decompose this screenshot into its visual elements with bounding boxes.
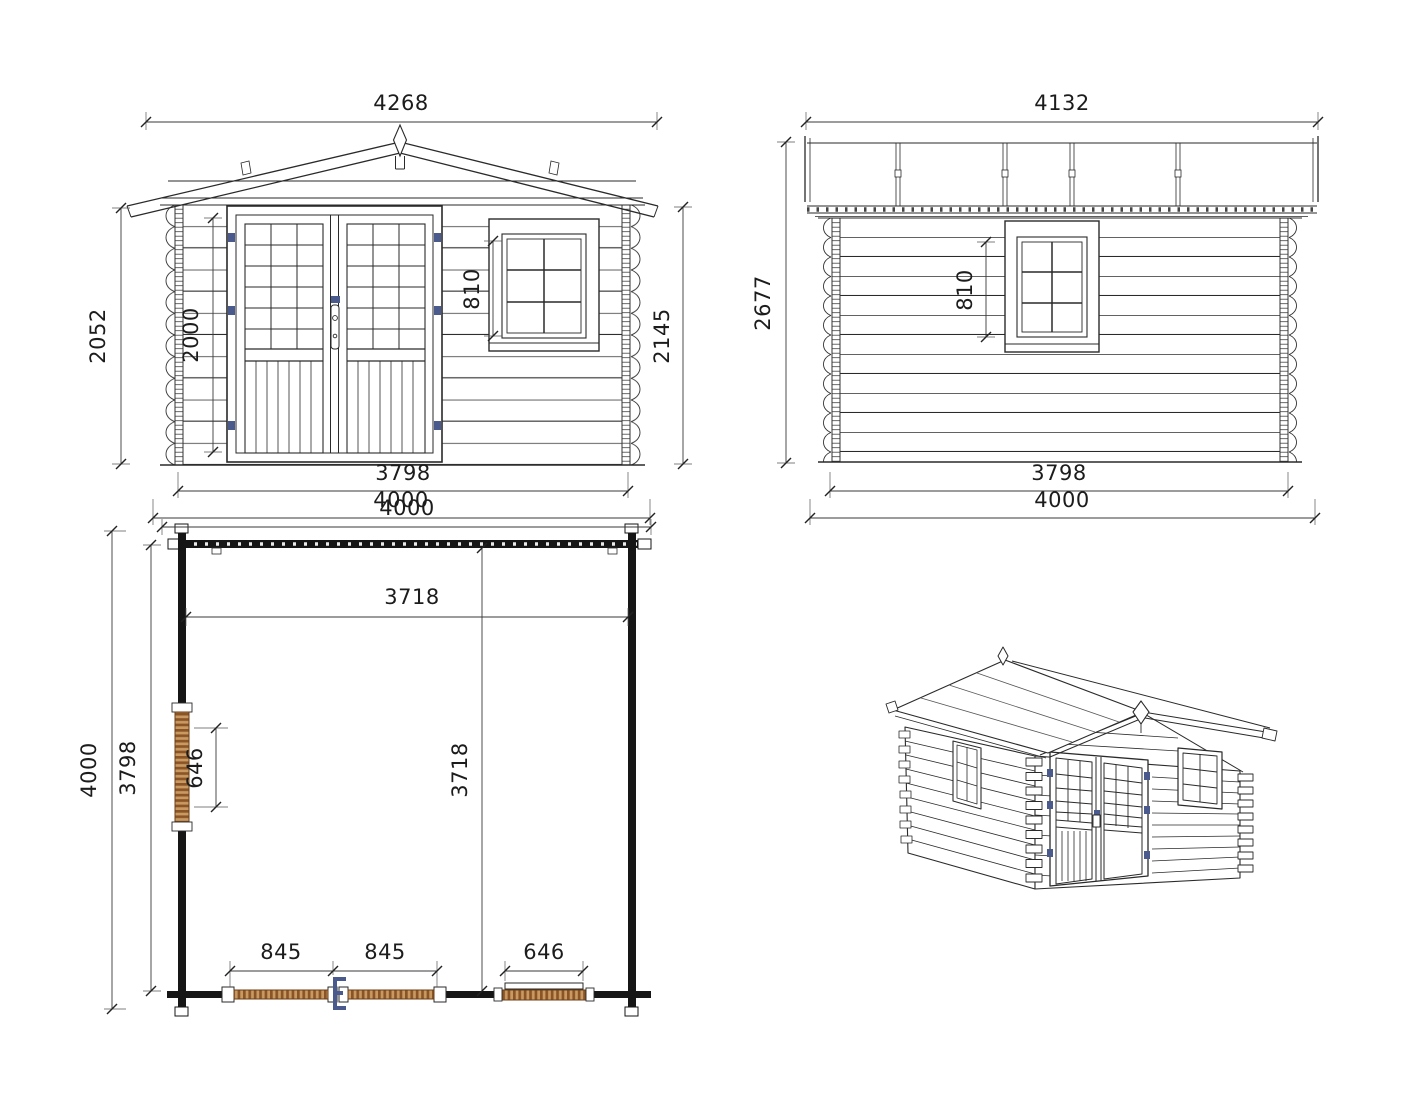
dim-front-overall-height: 2145 xyxy=(650,202,692,469)
side-elevation-view: 4132 2677 810 3798 4000 xyxy=(751,91,1323,525)
side-window xyxy=(1005,221,1099,352)
iso-left-wall xyxy=(899,727,1035,889)
floor-plan-view: 4000 3718 4000 3798 646 xyxy=(77,496,656,1016)
front-elevation-view: 4268 2052 2000 810 2145 xyxy=(86,91,692,525)
dim-label: 4000 xyxy=(379,496,434,520)
roof-brace-right xyxy=(549,161,559,175)
dim-label: 3718 xyxy=(448,742,472,797)
iso-side-window xyxy=(953,741,981,809)
dim-label: 646 xyxy=(523,940,565,964)
dim-plan-inner-width: 3718 xyxy=(181,585,633,626)
dim-label: 3798 xyxy=(375,461,430,485)
iso-front-left-notches xyxy=(1026,758,1042,882)
dim-plan-inner-depth: 3718 xyxy=(448,543,487,996)
dim-label: 845 xyxy=(260,940,302,964)
dim-label: 4000 xyxy=(1034,488,1089,512)
dim-side-overall-height: 2677 xyxy=(751,137,795,468)
iso-double-door xyxy=(1047,752,1150,886)
dim-label: 646 xyxy=(183,747,207,789)
front-roof xyxy=(127,125,658,217)
dim-label: 2677 xyxy=(751,275,775,330)
plan-front-window xyxy=(494,983,594,1001)
shed-technical-drawing-page: 4268 2052 2000 810 2145 xyxy=(0,0,1422,1100)
dim-plan-outer-width: 4000 xyxy=(157,496,656,535)
dim-label: 2145 xyxy=(650,308,674,363)
roof-board-joints xyxy=(895,143,1181,206)
iso-roof-right-tip xyxy=(1262,728,1277,741)
dim-front-wall-height: 2052 xyxy=(86,203,130,469)
isometric-view xyxy=(886,647,1277,889)
dim-label: 3798 xyxy=(116,740,140,795)
roof-brace-left xyxy=(241,161,251,175)
iso-front-window xyxy=(1178,748,1222,809)
dim-side-roof-length: 4132 xyxy=(801,91,1323,130)
plan-double-door xyxy=(222,977,446,1010)
dim-plan-front-window: 646 xyxy=(500,940,588,981)
front-window xyxy=(489,219,599,351)
dim-plan-side-window: 646 xyxy=(183,723,228,812)
dim-label: 4132 xyxy=(1034,91,1089,115)
dim-label: 810 xyxy=(460,268,484,310)
plan-roof-edge xyxy=(168,539,651,554)
technical-drawing-canvas: 4268 2052 2000 810 2145 xyxy=(0,0,1422,1100)
dim-label: 4000 xyxy=(77,742,101,797)
dim-label: 2000 xyxy=(179,307,203,362)
front-double-door xyxy=(227,206,442,462)
dim-side-base-length: 4000 xyxy=(805,488,1320,525)
dim-front-roof-width: 4268 xyxy=(141,91,662,130)
dim-label: 810 xyxy=(953,269,977,311)
dim-plan-wall-depth: 3798 xyxy=(116,540,161,996)
dim-label: 3718 xyxy=(384,585,439,609)
ridge-finial xyxy=(394,125,407,169)
dim-label: 3798 xyxy=(1031,461,1086,485)
dim-label: 2052 xyxy=(86,308,110,363)
dim-label: 845 xyxy=(364,940,406,964)
side-roof xyxy=(805,136,1318,217)
iso-door-handle xyxy=(1093,810,1100,827)
dim-label: 4268 xyxy=(373,91,428,115)
